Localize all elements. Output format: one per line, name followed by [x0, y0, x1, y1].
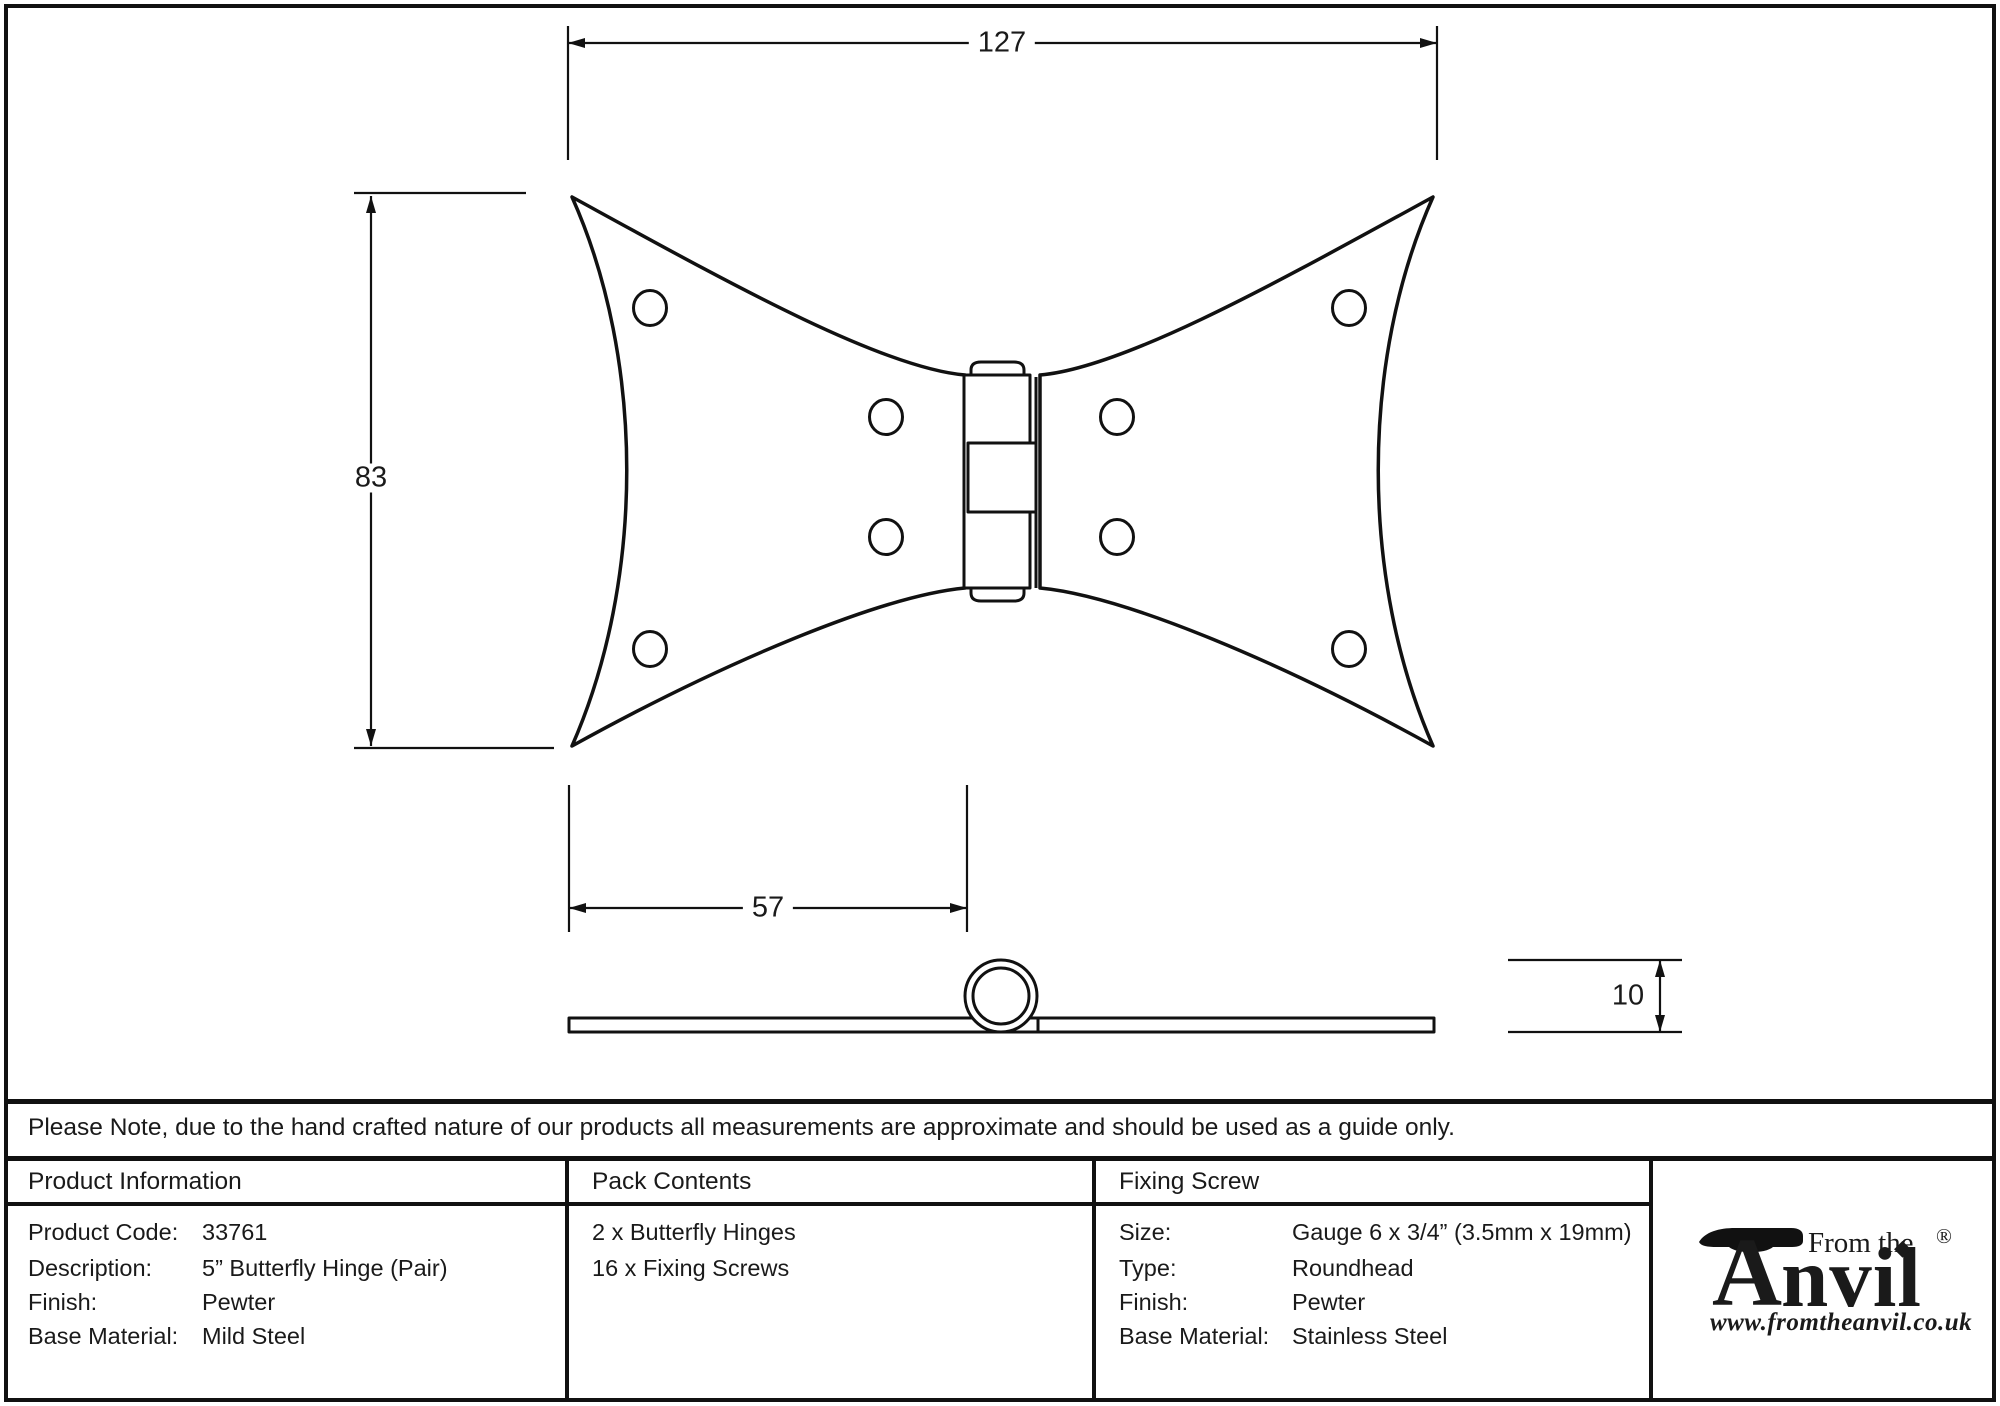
spec-sheet: 127 83 57 10 Please Note, due to the han…	[0, 0, 2000, 1406]
drawing-border	[4, 4, 1996, 1402]
